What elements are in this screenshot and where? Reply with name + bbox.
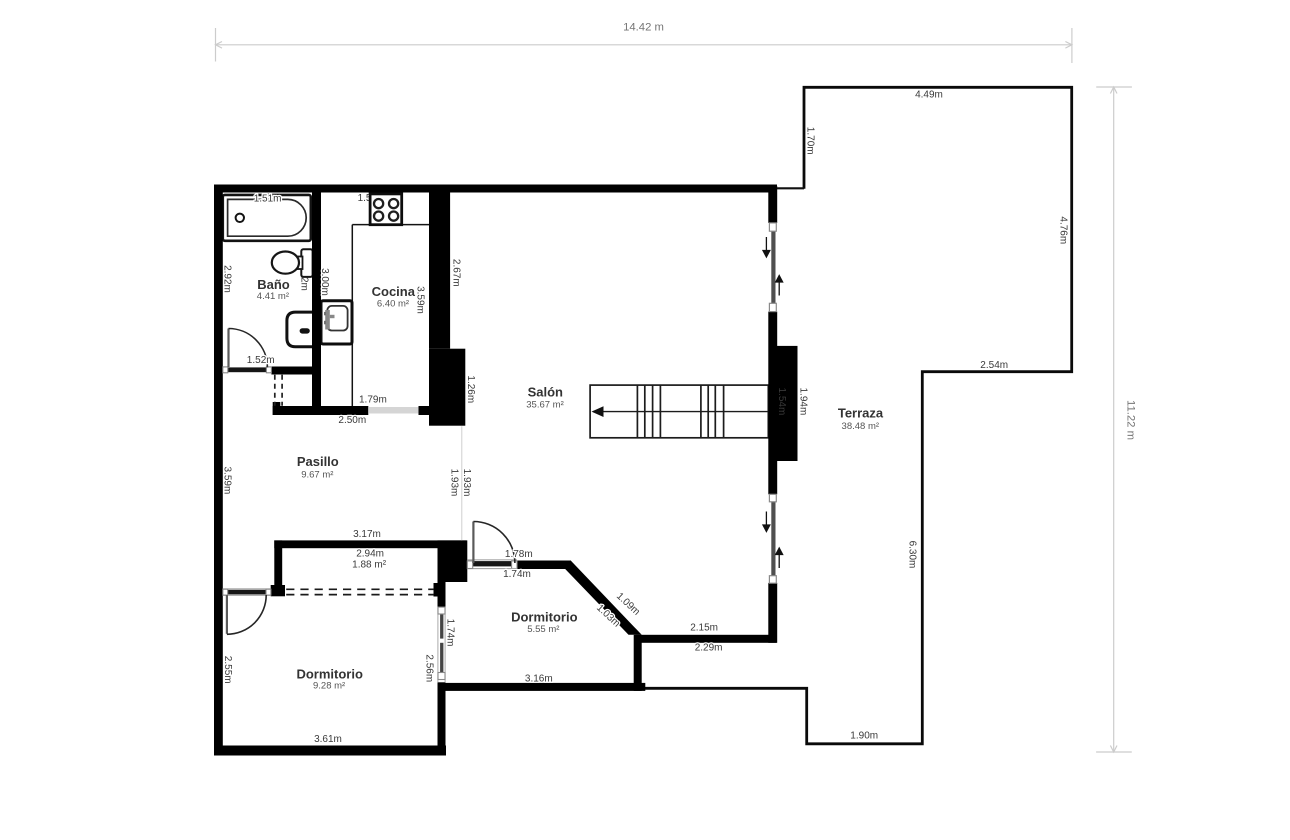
svg-text:5.55 m²: 5.55 m² — [527, 624, 559, 635]
svg-text:1.54m: 1.54m — [776, 388, 787, 416]
svg-text:1.93m: 1.93m — [448, 469, 459, 497]
svg-text:Pasillo: Pasillo — [297, 454, 339, 469]
svg-text:6.40 m²: 6.40 m² — [377, 298, 409, 309]
svg-text:2.54m: 2.54m — [980, 360, 1008, 371]
svg-text:14.42 m: 14.42 m — [623, 21, 664, 33]
svg-text:1.26m: 1.26m — [465, 375, 476, 403]
svg-text:2.67m: 2.67m — [450, 259, 461, 287]
svg-text:1.78m: 1.78m — [505, 549, 533, 560]
svg-text:11.22 m: 11.22 m — [1125, 400, 1137, 440]
svg-text:4.41 m²: 4.41 m² — [257, 291, 289, 302]
svg-text:2.94m: 2.94m — [356, 549, 384, 560]
svg-text:2.56m: 2.56m — [424, 654, 435, 682]
svg-text:1.70m: 1.70m — [805, 127, 816, 155]
svg-text:3.16m: 3.16m — [525, 673, 553, 684]
svg-text:35.67 m²: 35.67 m² — [526, 399, 564, 410]
svg-text:3.00m: 3.00m — [319, 268, 330, 296]
svg-text:1.90m: 1.90m — [850, 730, 878, 741]
svg-text:Cocina: Cocina — [372, 284, 416, 299]
svg-text:2.55m: 2.55m — [222, 656, 233, 684]
svg-text:2.29m: 2.29m — [695, 643, 723, 654]
svg-text:2.15m: 2.15m — [690, 623, 718, 634]
svg-text:Baño: Baño — [257, 277, 290, 292]
svg-text:4.49m: 4.49m — [915, 89, 943, 100]
svg-text:2.92m: 2.92m — [222, 265, 233, 293]
svg-text:1.74m: 1.74m — [445, 619, 456, 647]
svg-text:Dormitorio: Dormitorio — [511, 609, 578, 624]
svg-text:3.59m: 3.59m — [222, 467, 233, 495]
svg-text:1.52m: 1.52m — [247, 355, 275, 366]
svg-text:2.50m: 2.50m — [338, 415, 366, 426]
svg-text:3.17m: 3.17m — [353, 529, 381, 540]
svg-text:6.30m: 6.30m — [907, 541, 918, 569]
svg-text:1.94m: 1.94m — [798, 388, 809, 416]
svg-text:Salón: Salón — [528, 384, 563, 399]
svg-text:1.51m: 1.51m — [254, 194, 282, 205]
svg-text:Terraza: Terraza — [838, 405, 884, 420]
svg-text:Dormitorio: Dormitorio — [296, 667, 363, 682]
svg-text:9.67 m²: 9.67 m² — [301, 470, 333, 481]
svg-text:1.93m: 1.93m — [461, 469, 472, 497]
svg-text:3.61m: 3.61m — [314, 734, 342, 745]
svg-text:9.28 m²: 9.28 m² — [313, 681, 345, 692]
svg-text:38.48 m²: 38.48 m² — [842, 421, 880, 432]
svg-text:4.76m: 4.76m — [1058, 216, 1069, 244]
svg-text:1.74m: 1.74m — [503, 569, 531, 580]
svg-text:1.88 m²: 1.88 m² — [352, 560, 387, 571]
svg-text:1.79m: 1.79m — [359, 395, 387, 406]
svg-text:3.59m: 3.59m — [415, 286, 426, 314]
